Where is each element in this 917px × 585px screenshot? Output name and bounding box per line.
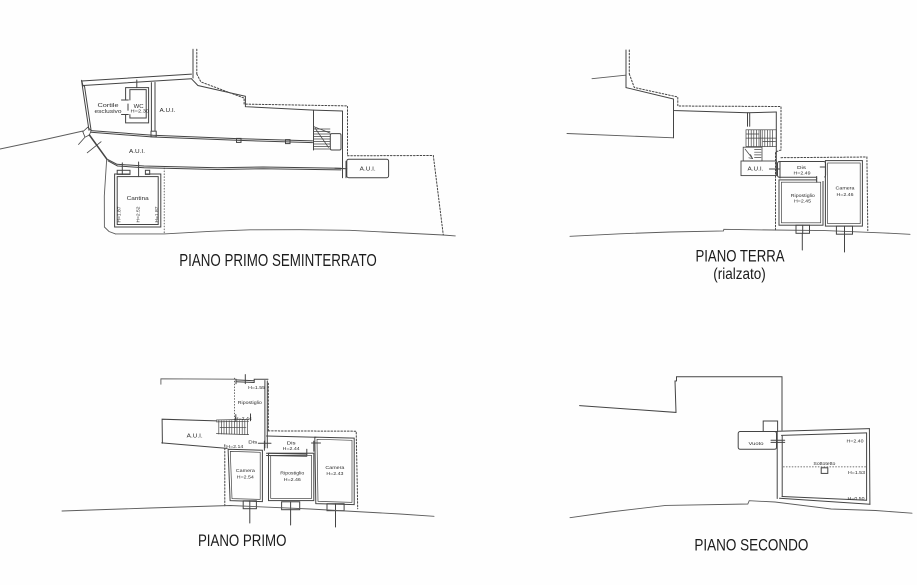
svg-text:H=2.46: H=2.46 xyxy=(284,477,302,482)
svg-text:Camera: Camera xyxy=(325,465,344,471)
svg-text:H=2.49: H=2.49 xyxy=(794,171,812,176)
svg-text:H=1.87: H=1.87 xyxy=(154,206,159,223)
svg-text:A.U.I.: A.U.I. xyxy=(160,108,176,114)
svg-text:Vuoto: Vuoto xyxy=(749,441,764,447)
svg-text:H=2.54: H=2.54 xyxy=(237,474,255,479)
svg-text:H=1.53: H=1.53 xyxy=(848,470,865,475)
svg-text:H=1.87: H=1.87 xyxy=(117,206,122,223)
svg-text:H=0.50: H=0.50 xyxy=(848,496,865,501)
svg-text:H=2.46: H=2.46 xyxy=(837,192,855,197)
svg-text:PIANO PRIMO SEMINTERRATO: PIANO PRIMO SEMINTERRATO xyxy=(179,250,377,270)
svg-text:PIANO PRIMO: PIANO PRIMO xyxy=(198,531,287,550)
svg-text:(rialzato): (rialzato) xyxy=(713,266,766,283)
svg-text:A.U.I.: A.U.I. xyxy=(748,167,764,173)
svg-text:H=2.45: H=2.45 xyxy=(794,199,812,204)
svg-text:H=2.40: H=2.40 xyxy=(847,439,864,444)
svg-text:A.U.I.: A.U.I. xyxy=(360,167,376,173)
svg-text:H=1.55: H=1.55 xyxy=(248,385,266,390)
svg-text:Ripostiglio: Ripostiglio xyxy=(238,400,262,406)
svg-text:Dis: Dis xyxy=(248,440,258,446)
svg-text:PIANO TERRA: PIANO TERRA xyxy=(696,246,786,265)
svg-text:Sottotetto: Sottotetto xyxy=(813,461,835,467)
svg-text:H=2.52: H=2.52 xyxy=(135,206,140,223)
svg-text:Camera: Camera xyxy=(836,186,855,192)
svg-text:H=2.44: H=2.44 xyxy=(283,446,301,451)
svg-text:H=2.44: H=2.44 xyxy=(235,416,253,421)
svg-text:Ripostiglio: Ripostiglio xyxy=(280,471,304,477)
svg-text:H=2.14: H=2.14 xyxy=(226,444,244,449)
svg-text:Camera: Camera xyxy=(236,468,255,474)
svg-text:H=2.30: H=2.30 xyxy=(131,108,150,114)
svg-text:Cantina: Cantina xyxy=(127,196,149,202)
svg-text:A.U.I.: A.U.I. xyxy=(129,149,145,155)
svg-text:A.U.I.: A.U.I. xyxy=(187,433,203,439)
svg-text:PIANO SECONDO: PIANO SECONDO xyxy=(694,537,808,555)
svg-text:H=2.43: H=2.43 xyxy=(326,471,344,476)
svg-text:esclusivo: esclusivo xyxy=(95,109,122,115)
